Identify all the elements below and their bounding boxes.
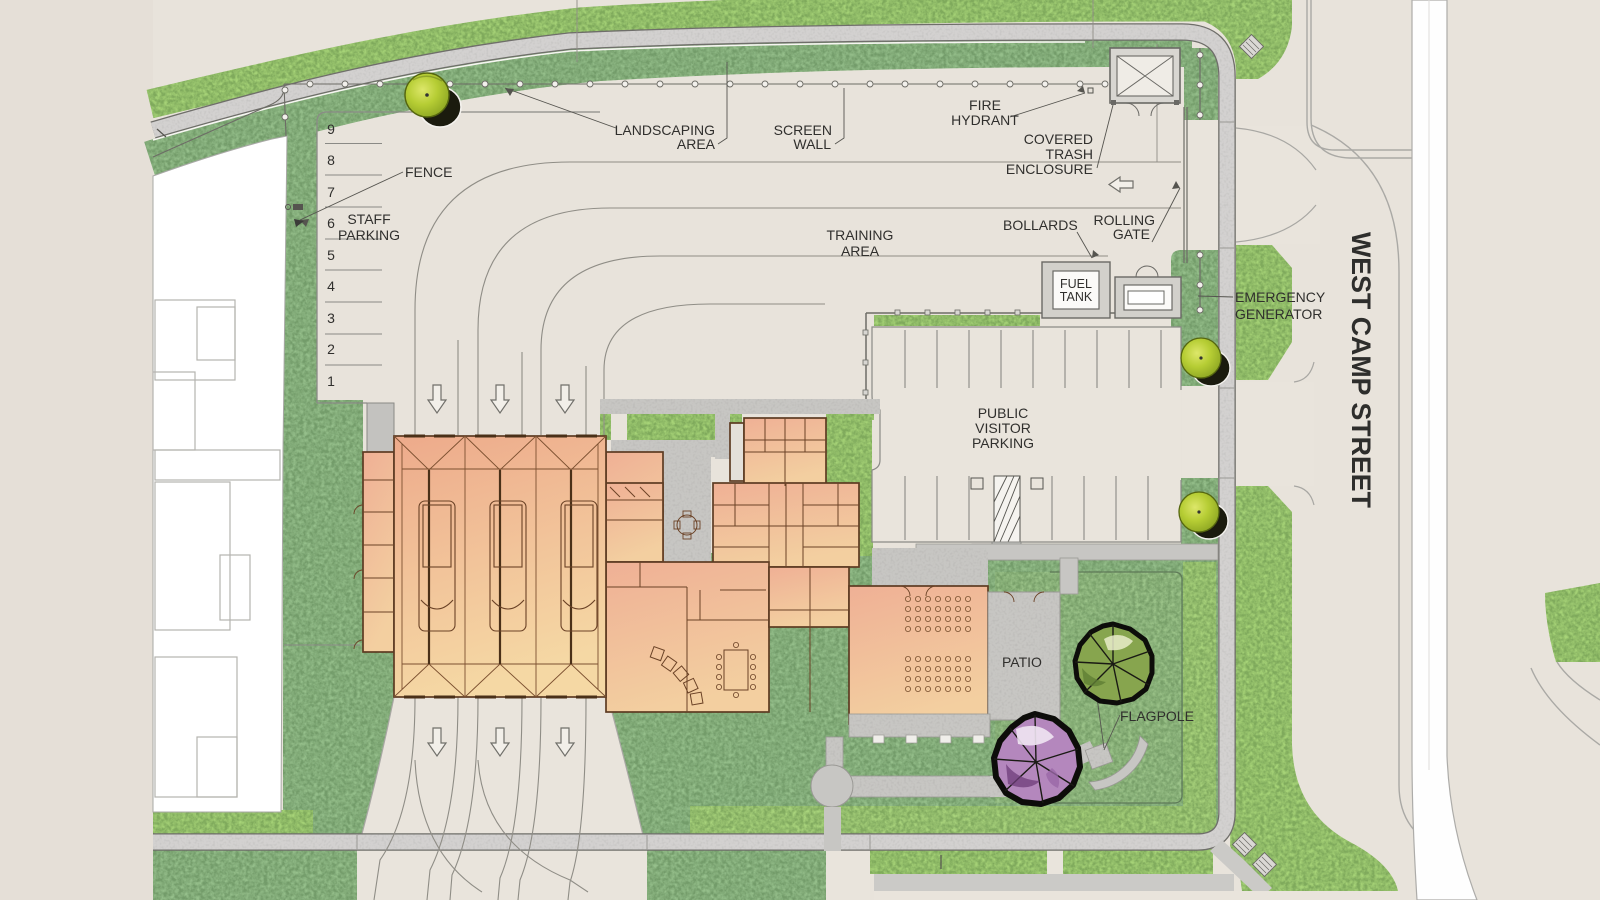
svg-text:TANK: TANK (1060, 290, 1093, 304)
svg-text:FENCE: FENCE (405, 164, 452, 180)
svg-text:GENERATOR: GENERATOR (1235, 306, 1322, 322)
svg-text:3: 3 (327, 310, 335, 326)
svg-text:1: 1 (327, 373, 335, 389)
svg-text:PARKING: PARKING (972, 435, 1034, 451)
svg-text:6: 6 (327, 215, 335, 231)
svg-text:FLAGPOLE: FLAGPOLE (1120, 708, 1194, 724)
svg-text:PUBLIC: PUBLIC (978, 405, 1029, 421)
svg-text:BOLLARDS: BOLLARDS (1003, 217, 1078, 233)
svg-text:8: 8 (327, 152, 335, 168)
svg-text:ENCLOSURE: ENCLOSURE (1006, 161, 1093, 177)
svg-text:EMERGENCY: EMERGENCY (1235, 289, 1326, 305)
svg-text:PARKING: PARKING (338, 227, 400, 243)
svg-text:COVERED: COVERED (1024, 131, 1093, 147)
svg-text:TRASH: TRASH (1046, 146, 1093, 162)
svg-text:AREA: AREA (677, 136, 716, 152)
svg-text:7: 7 (327, 184, 335, 200)
svg-text:5: 5 (327, 247, 335, 263)
svg-text:WEST CAMP STREET: WEST CAMP STREET (1346, 232, 1376, 508)
svg-text:FIRE: FIRE (969, 97, 1001, 113)
svg-text:2: 2 (327, 341, 335, 357)
svg-text:AREA: AREA (841, 243, 880, 259)
svg-text:TRAINING: TRAINING (827, 227, 894, 243)
svg-text:WALL: WALL (793, 136, 831, 152)
svg-text:4: 4 (327, 278, 335, 294)
svg-text:PATIO: PATIO (1002, 654, 1042, 670)
svg-text:GATE: GATE (1113, 226, 1150, 242)
svg-text:VISITOR: VISITOR (975, 420, 1031, 436)
svg-text:HYDRANT: HYDRANT (951, 112, 1019, 128)
svg-text:STAFF: STAFF (347, 211, 390, 227)
svg-text:9: 9 (327, 121, 335, 137)
svg-text:FUEL: FUEL (1060, 277, 1092, 291)
